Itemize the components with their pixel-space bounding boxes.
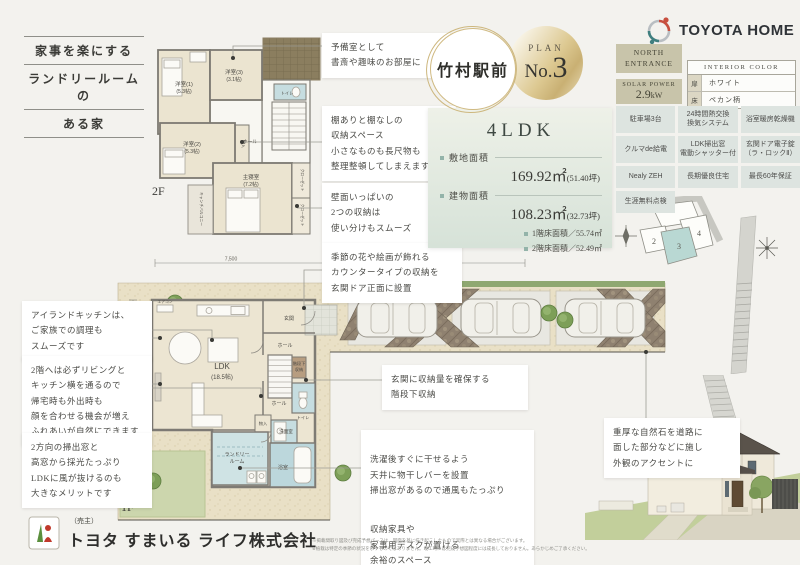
brand-name: TOYOTA HOME <box>679 22 794 39</box>
feature-grid: 駐車場3台 24時間熱交換 換気システム 浴室暖房乾燥機 クルマde給電 LDK… <box>616 106 800 213</box>
feature-warranty: 最長60年保証 <box>741 166 800 188</box>
solar-kw: 2.9 <box>636 87 651 101</box>
room-size: (3.1帖) <box>226 76 242 83</box>
room-label: 洋室(2) <box>183 140 201 148</box>
feature-longlife: 長期優良住宅 <box>678 166 737 188</box>
room-label: 階段下 <box>293 360 306 367</box>
interior-color-table: INTERIOR COLOR 扉 ホワイト 床 ペカン柄 <box>687 60 796 109</box>
landmark-star-icon <box>756 237 778 259</box>
building-area-m2: 108.23㎡ <box>510 207 566 223</box>
tagline: 家事を楽にする ランドリールームの ある家 <box>24 36 144 138</box>
bullet-icon <box>524 232 528 236</box>
bullet-icon <box>440 156 444 160</box>
brand-logo: TOYOTA HOME <box>645 16 794 44</box>
feature-smart-lock: 玄関ドア電子錠 （ラ・ロックⅡ） <box>741 136 800 163</box>
disclaimer-text: ※掲載間取り図及び完成予想パースは、図面を基に描き起こしたもので実際とは異なる場… <box>312 537 590 552</box>
plan-number-circle: PLAN No.3 <box>509 26 583 100</box>
plan-number: No.3 <box>525 53 568 83</box>
spec-badges: NORTH ENTRANCE SOLAR POWER 2.9kW <box>616 44 682 110</box>
floor1-area: 1階床面積／55.74㎡ <box>532 228 602 239</box>
room-label: 物入 <box>259 420 268 427</box>
room-label: エアコン <box>157 299 172 304</box>
room-label: クローゼット <box>300 169 305 192</box>
rule-line <box>495 195 602 196</box>
callout-island-kitchen: アイランドキッチンは、 ご家族での調理も スムーズです <box>22 301 152 361</box>
car <box>461 299 541 337</box>
lot-number-2: 2 <box>652 237 656 246</box>
company-text: （売主） トヨタ すまいる ライフ株式会社 <box>68 516 317 551</box>
lot-number-3: 3 <box>677 242 681 251</box>
tagline-line3: ある家 <box>24 109 144 138</box>
layout-type: 4LDK <box>440 120 602 142</box>
dim-width: 7,500 <box>225 257 238 263</box>
room-label: 浴室 <box>278 464 288 471</box>
room-size: (5.3帖) <box>176 88 192 95</box>
company-logo-icon <box>28 516 60 550</box>
door-label: 扉 <box>688 75 702 91</box>
toyota-home-icon <box>645 16 673 44</box>
rule-line <box>495 157 602 158</box>
feature-ventilation: 24時間熱交換 換気システム <box>678 106 737 133</box>
plan-no-prefix: No. <box>525 61 553 82</box>
door-color: ホワイト <box>702 75 741 91</box>
floor2-area: 2階床面積／52.49㎡ <box>532 243 602 254</box>
callout-laundry-bar: 洗濯後すぐに干せるよう 天井に物干しバーを設置 掃出窓があるので通風もたっぷり <box>370 452 525 498</box>
site-area-m2: 169.92㎡ <box>510 169 566 185</box>
room-label: キャンチバルコニー <box>199 192 204 226</box>
car <box>357 299 437 337</box>
tagline-line2: ランドリールームの <box>24 64 144 109</box>
building-area-value: 108.23㎡(32.73坪) <box>440 203 600 224</box>
room-size: (18.5帖) <box>211 373 233 381</box>
room-label: トイレ <box>281 91 294 96</box>
floor-plan-2f: 洋室(1) (5.3帖) 洋室(3) (3.1帖) トイレ ホール 物入 洋室(… <box>150 22 325 240</box>
lot-road-right <box>731 216 756 374</box>
area-summary-panel: 4LDK 敷地面積 169.92㎡(51.40坪) 建物面積 108.23㎡(3… <box>428 108 612 248</box>
room-label: ルーム <box>230 459 245 465</box>
roof-hatch <box>263 38 320 80</box>
location-name: 竹村駅前 <box>437 57 509 81</box>
site-area-row: 敷地面積 <box>440 151 602 164</box>
floor2-area-row: 2階床面積／52.49㎡ <box>440 243 602 254</box>
site-area-tsubo: (51.40坪) <box>567 173 600 183</box>
room-label: クローゼット <box>300 204 305 227</box>
building-area-label: 建物面積 <box>449 189 489 202</box>
location-circle: 竹村駅前 <box>430 28 516 110</box>
room-label: 主寝室 <box>243 173 260 181</box>
room-label: ホール <box>277 343 292 349</box>
company-name: トヨタ すまいる ライフ株式会社 <box>68 527 317 551</box>
room-label: LDK <box>214 362 230 371</box>
room-size: (5.3帖) <box>184 148 200 155</box>
room-label: 洋室(3) <box>225 68 243 76</box>
compass-icon <box>615 225 637 247</box>
site-area-label: 敷地面積 <box>449 151 489 164</box>
room-label: 洋室(1) <box>175 80 193 88</box>
room-label: 物入 <box>241 140 247 148</box>
feature-inspection: 生涯無料点検 <box>616 191 675 213</box>
north-entrance-badge: NORTH ENTRANCE <box>616 44 682 73</box>
solar-value: 2.9kW <box>616 88 682 101</box>
feature-parking: 駐車場3台 <box>616 106 675 133</box>
plan-no-digit: 3 <box>552 51 567 84</box>
floor1-area-row: 1階床面積／55.74㎡ <box>440 228 602 239</box>
feature-car-power: クルマde給電 <box>616 136 675 163</box>
room-label: ホール <box>271 401 286 407</box>
lot-number-4: 4 <box>697 229 701 238</box>
lot-map: 2 3 4 <box>613 196 800 374</box>
feature-zeh: Nealy ZEH <box>616 166 675 188</box>
feature-shutter: LDK掃出窓 電動シャッター付 <box>678 136 737 163</box>
seller-label: （売主） <box>70 516 317 526</box>
footer: （売主） トヨタ すまいる ライフ株式会社 <box>28 516 317 551</box>
callout-windows: 2方向の掃出窓と 高窓から採光たっぷり LDKに風が抜けるのも 大きなメリットで… <box>22 433 152 508</box>
bullet-icon <box>524 247 528 251</box>
entrance-tiles <box>305 305 337 335</box>
bullet-icon <box>440 194 444 198</box>
feature-bath-dryer: 浴室暖房乾燥機 <box>741 106 800 133</box>
interior-color-title: INTERIOR COLOR <box>688 61 795 75</box>
solar-power-badge: SOLAR POWER 2.9kW <box>616 79 682 104</box>
building-area-row: 建物面積 <box>440 189 602 202</box>
callout-stone-accent: 重厚な自然石を道路に 面した部分などに施し 外観のアクセントに <box>604 418 740 478</box>
room-label: 洗面室 <box>279 428 293 435</box>
callout-under-stairs: 玄関に収納量を確保する 階段下収納 <box>382 365 528 410</box>
floor-label-2f: 2F <box>152 184 165 199</box>
solar-unit: kW <box>651 91 663 100</box>
site-area-value: 169.92㎡(51.40坪) <box>440 165 600 186</box>
flyer-page: 家事を楽にする ランドリールームの ある家 <box>0 0 800 565</box>
room-label: 収納 <box>295 366 303 373</box>
room-label: トイレ <box>297 415 310 420</box>
room-size: (7.2帖) <box>243 181 259 188</box>
tagline-line1: 家事を楽にする <box>24 36 144 64</box>
building-area-tsubo: (32.73坪) <box>567 211 600 221</box>
room-label: 玄関 <box>284 315 294 322</box>
table-row: 扉 ホワイト <box>688 75 795 91</box>
room-label: ランドリー <box>224 452 249 458</box>
